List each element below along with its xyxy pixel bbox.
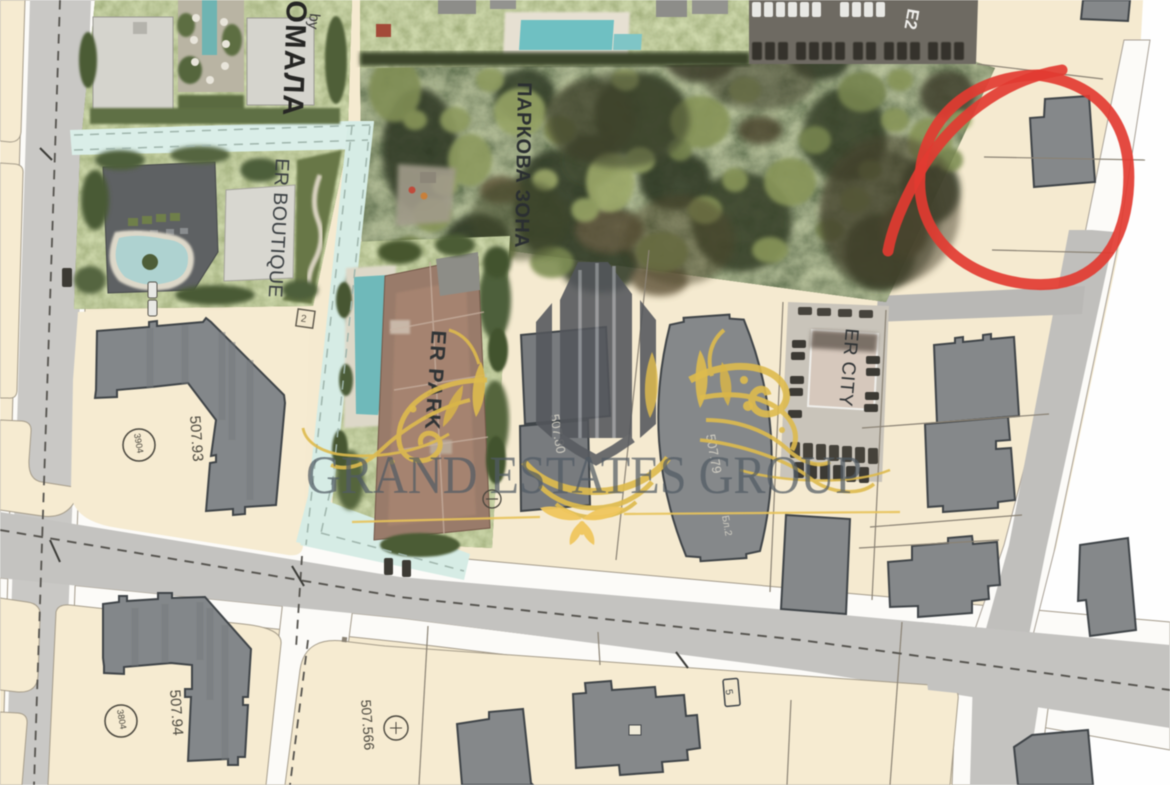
svg-text:GRAND ESTATES GROUP: GRAND ESTATES GROUP — [306, 445, 862, 505]
svg-text:507.93: 507.93 — [186, 415, 206, 462]
svg-text:ПАРКОВА ЗОНА: ПАРКОВА ЗОНА — [510, 82, 535, 248]
svg-text:507.94: 507.94 — [166, 689, 186, 736]
svg-text:E2: E2 — [900, 7, 922, 31]
svg-text:ОМАЛА: ОМАЛА — [276, 0, 312, 118]
